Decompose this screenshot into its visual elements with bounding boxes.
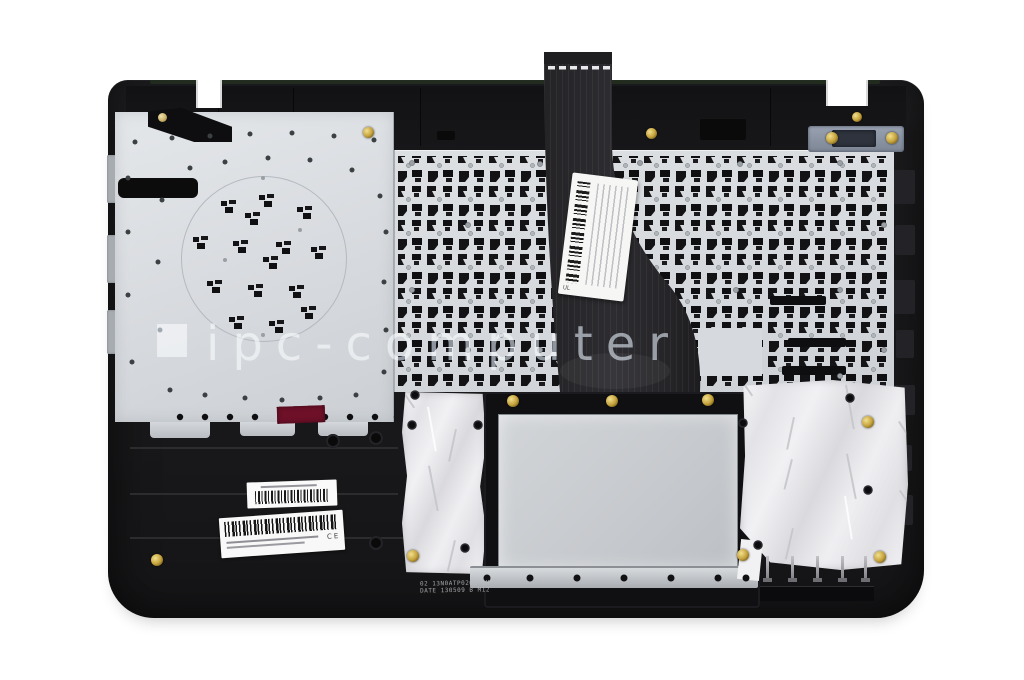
brass-standoff [507,395,519,407]
plate-screw [409,160,414,165]
contact-pin [864,556,867,580]
top-edge-notch-left [196,80,222,108]
bracket-screw [743,575,750,582]
plate-screw [837,160,842,165]
contact-pin-foot [813,578,822,582]
rivet-dot [126,176,131,181]
rivet-dot [227,414,233,420]
rivet-dot [354,393,359,398]
dome-cluster [225,207,233,213]
dome-cluster [289,286,295,291]
dome-cluster [245,213,251,218]
dome-cluster [253,212,260,216]
label-microtext [585,184,631,289]
black-screw [474,421,482,429]
dome-cluster [215,280,222,284]
rivet-dot [177,414,183,420]
product-photo: UL CE 02 13N0ATP0201 1M DATE 130509 B M1… [0,0,1024,680]
edge-rib [893,280,915,314]
plate-screw [465,222,470,227]
red-qc-sticker [277,405,326,424]
brass-screw [363,127,374,138]
brass-standoff [737,549,749,561]
dome-cluster [241,240,248,244]
dome-cluster [197,243,205,249]
service-label-small [247,479,338,508]
dome-cluster [254,291,262,297]
hinge-bracket-slot [832,130,876,147]
rivet-dot [243,396,248,401]
black-screw [411,391,419,399]
brass-screw [826,132,838,144]
watermark-logo-square [157,324,187,357]
rivet-dot [378,194,383,199]
label-microtext [261,484,317,488]
contact-pin-foot [788,578,797,582]
bracket-screw [668,575,675,582]
rivet-dot [168,388,173,393]
bracket-screw [574,575,581,582]
rivet-dot [372,138,377,143]
rivet-dot [347,414,353,420]
molded-detail [437,130,455,140]
rivet-dot [382,280,387,285]
rivet-dot [202,414,208,420]
black-screw [754,541,762,549]
dome-cluster [271,256,278,260]
plate-screw [881,347,886,352]
dome-cluster [267,194,274,198]
contact-pin-row [760,552,878,604]
dome-cluster [297,285,304,289]
dome-cluster [250,219,258,225]
rivet-dot [280,398,285,403]
brass-standoff [862,416,874,428]
rivet-dot [290,131,295,136]
rivet-dot [188,166,193,171]
dome-cluster [238,247,246,253]
contact-pin [816,556,819,580]
contact-pin [841,556,844,580]
edge-rib [893,170,915,204]
screw-boss [326,434,340,448]
contact-pin-foot [763,578,772,582]
brass-screw [886,132,898,144]
rivet-dot [266,156,271,161]
dome-cluster [293,292,301,298]
plate-rivet-field [115,112,394,442]
dome-cluster [248,285,254,290]
black-screw [739,419,747,427]
rivet-dot [126,230,131,235]
ul-mark-icon: UL [563,284,571,292]
dome-cluster [212,287,220,293]
rivet-dot [223,160,228,165]
dome-cluster [303,213,311,219]
plate-screw [837,287,842,292]
dome-cluster [315,253,323,259]
dome-cluster [193,237,199,242]
rivet-dot [126,293,131,298]
dome-cluster [256,284,263,288]
rivet-dot [170,136,175,141]
edge-rib [896,330,914,358]
dome-cluster [201,236,208,240]
bracket-screw [715,575,722,582]
contact-pin-foot [838,578,847,582]
dome-screw [261,176,265,180]
plate-tab [318,422,368,436]
contact-pin-foot [861,578,870,582]
brass-standoff [151,554,163,566]
panel-seam [420,88,421,146]
edge-rib [895,225,915,255]
rivet-dot [160,198,165,203]
barcode-icon [224,514,337,537]
molded-rib [130,447,398,449]
plate-tab [240,422,295,436]
dome-cluster [284,241,291,245]
dome-cluster [207,281,213,286]
brass-standoff [407,550,419,562]
dome-cluster [282,248,290,254]
plate-tab [150,422,210,438]
dome-cluster [229,200,236,204]
dome-screw [223,258,227,262]
dome-cluster [297,207,303,212]
rivet-dot [332,134,337,139]
bracket-screw [621,575,628,582]
rivet-dot [133,140,138,145]
rivet-dot [384,230,389,235]
dome-cluster [263,257,269,262]
rivet-dot [252,414,258,420]
watermark-text: ipc-computer [206,316,681,372]
rivet-dot [156,260,161,265]
ce-mark-icon: CE [327,532,341,541]
top-edge-notch-right [826,80,868,106]
rivet-dot [208,134,213,139]
rivet-dot [308,158,313,163]
black-screw [461,544,469,552]
rivet-dot [248,132,253,137]
rivet-dot [130,360,135,365]
dome-cluster [221,201,227,206]
dome-cluster [319,246,326,250]
black-screw [846,394,854,402]
black-screw [864,486,872,494]
contact-pin [766,556,769,580]
contact-pin [791,556,794,580]
dome-cluster [305,206,312,210]
dome-screw [298,228,302,232]
plate-screw [409,287,414,292]
rivet-dot [203,393,208,398]
mould-date-stamp: 02 13N0ATP0201 1M DATE 130509 B M12 [420,579,490,594]
stamp-line2: DATE 130509 B M12 [420,586,490,594]
dome-cluster [311,247,317,252]
barcode-icon [255,489,329,505]
dome-cluster [233,241,239,246]
plate-screw [881,222,886,227]
rivet-dot [350,168,355,173]
black-screw [408,421,416,429]
rivet-dot [318,396,323,401]
rivet-dot [372,414,378,420]
dome-cluster [301,307,307,312]
dome-cluster [276,242,282,247]
brass-screw [852,112,862,122]
dome-cluster [309,306,316,310]
bracket-screw [527,575,534,582]
dome-cluster [259,195,265,200]
dome-cluster [269,263,277,269]
brass-standoff [874,551,886,563]
contact-pin-base [760,586,874,601]
dome-cluster [264,201,272,207]
